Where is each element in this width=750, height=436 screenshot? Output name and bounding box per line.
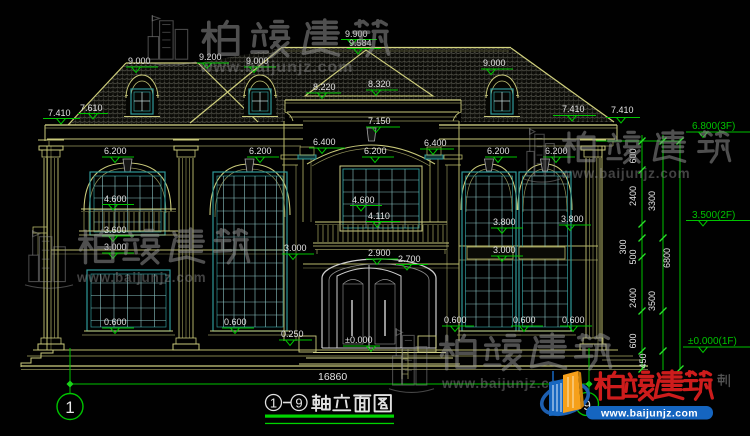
svg-text:0.600: 0.600 <box>104 317 127 327</box>
svg-text:±0.000(1F): ±0.000(1F) <box>688 336 737 347</box>
svg-text:6.200: 6.200 <box>104 146 127 156</box>
svg-text:0.600: 0.600 <box>444 315 467 325</box>
svg-text:9.000: 9.000 <box>128 56 151 66</box>
svg-text:0.250: 0.250 <box>281 329 304 339</box>
svg-text:4.600: 4.600 <box>352 195 375 205</box>
svg-text:300: 300 <box>618 239 628 254</box>
svg-text:6.400: 6.400 <box>313 137 336 147</box>
svg-text:500: 500 <box>628 249 638 264</box>
svg-text:6800: 6800 <box>662 248 672 268</box>
svg-text:9.000: 9.000 <box>483 58 506 68</box>
svg-text:3.500(2F): 3.500(2F) <box>692 210 735 221</box>
svg-text:450: 450 <box>638 353 648 368</box>
svg-text:3.800: 3.800 <box>561 214 584 224</box>
svg-text:2400: 2400 <box>628 288 638 308</box>
svg-text:3.000: 3.000 <box>284 243 307 253</box>
svg-text:www.baijunjz.com: www.baijunjz.com <box>76 270 206 285</box>
svg-text:4.600: 4.600 <box>104 194 127 204</box>
svg-text:8.220: 8.220 <box>313 82 336 92</box>
svg-text:7.610: 7.610 <box>80 103 103 113</box>
svg-text:www.baijunjz.com: www.baijunjz.com <box>600 408 698 420</box>
svg-text:www.baijunjz.com: www.baijunjz.com <box>199 59 353 76</box>
svg-text:3.000: 3.000 <box>493 245 516 255</box>
svg-text:3300: 3300 <box>647 191 657 211</box>
svg-text:2400: 2400 <box>628 186 638 206</box>
svg-text:3.600: 3.600 <box>104 225 127 235</box>
svg-text:±0.000: ±0.000 <box>345 335 372 345</box>
svg-text:9: 9 <box>295 396 302 411</box>
svg-text:7.150: 7.150 <box>368 116 391 126</box>
svg-text:3.800: 3.800 <box>493 217 516 227</box>
svg-text:1: 1 <box>270 396 277 411</box>
svg-text:0.600: 0.600 <box>224 317 247 327</box>
svg-text:0.600: 0.600 <box>562 315 585 325</box>
svg-text:7.410: 7.410 <box>562 104 585 114</box>
svg-text:6.200: 6.200 <box>487 146 510 156</box>
svg-text:4.110: 4.110 <box>368 211 390 221</box>
svg-text:2.700: 2.700 <box>398 254 421 264</box>
svg-text:0.600: 0.600 <box>513 315 536 325</box>
svg-text:2.900: 2.900 <box>368 248 391 258</box>
svg-text:6.200: 6.200 <box>364 146 387 156</box>
svg-text:1: 1 <box>65 398 74 417</box>
svg-text:3500: 3500 <box>647 291 657 311</box>
svg-text:6.400: 6.400 <box>424 138 447 148</box>
svg-text:16860: 16860 <box>318 371 347 383</box>
svg-text:7.410: 7.410 <box>48 108 71 118</box>
svg-text:600: 600 <box>628 333 638 348</box>
svg-text:www.baijunjz.com: www.baijunjz.com <box>560 166 690 181</box>
svg-text:8.320: 8.320 <box>368 79 391 89</box>
svg-text:6.800(3F): 6.800(3F) <box>692 121 735 132</box>
svg-text:6.200: 6.200 <box>249 146 272 156</box>
svg-text:7.410: 7.410 <box>611 105 634 115</box>
